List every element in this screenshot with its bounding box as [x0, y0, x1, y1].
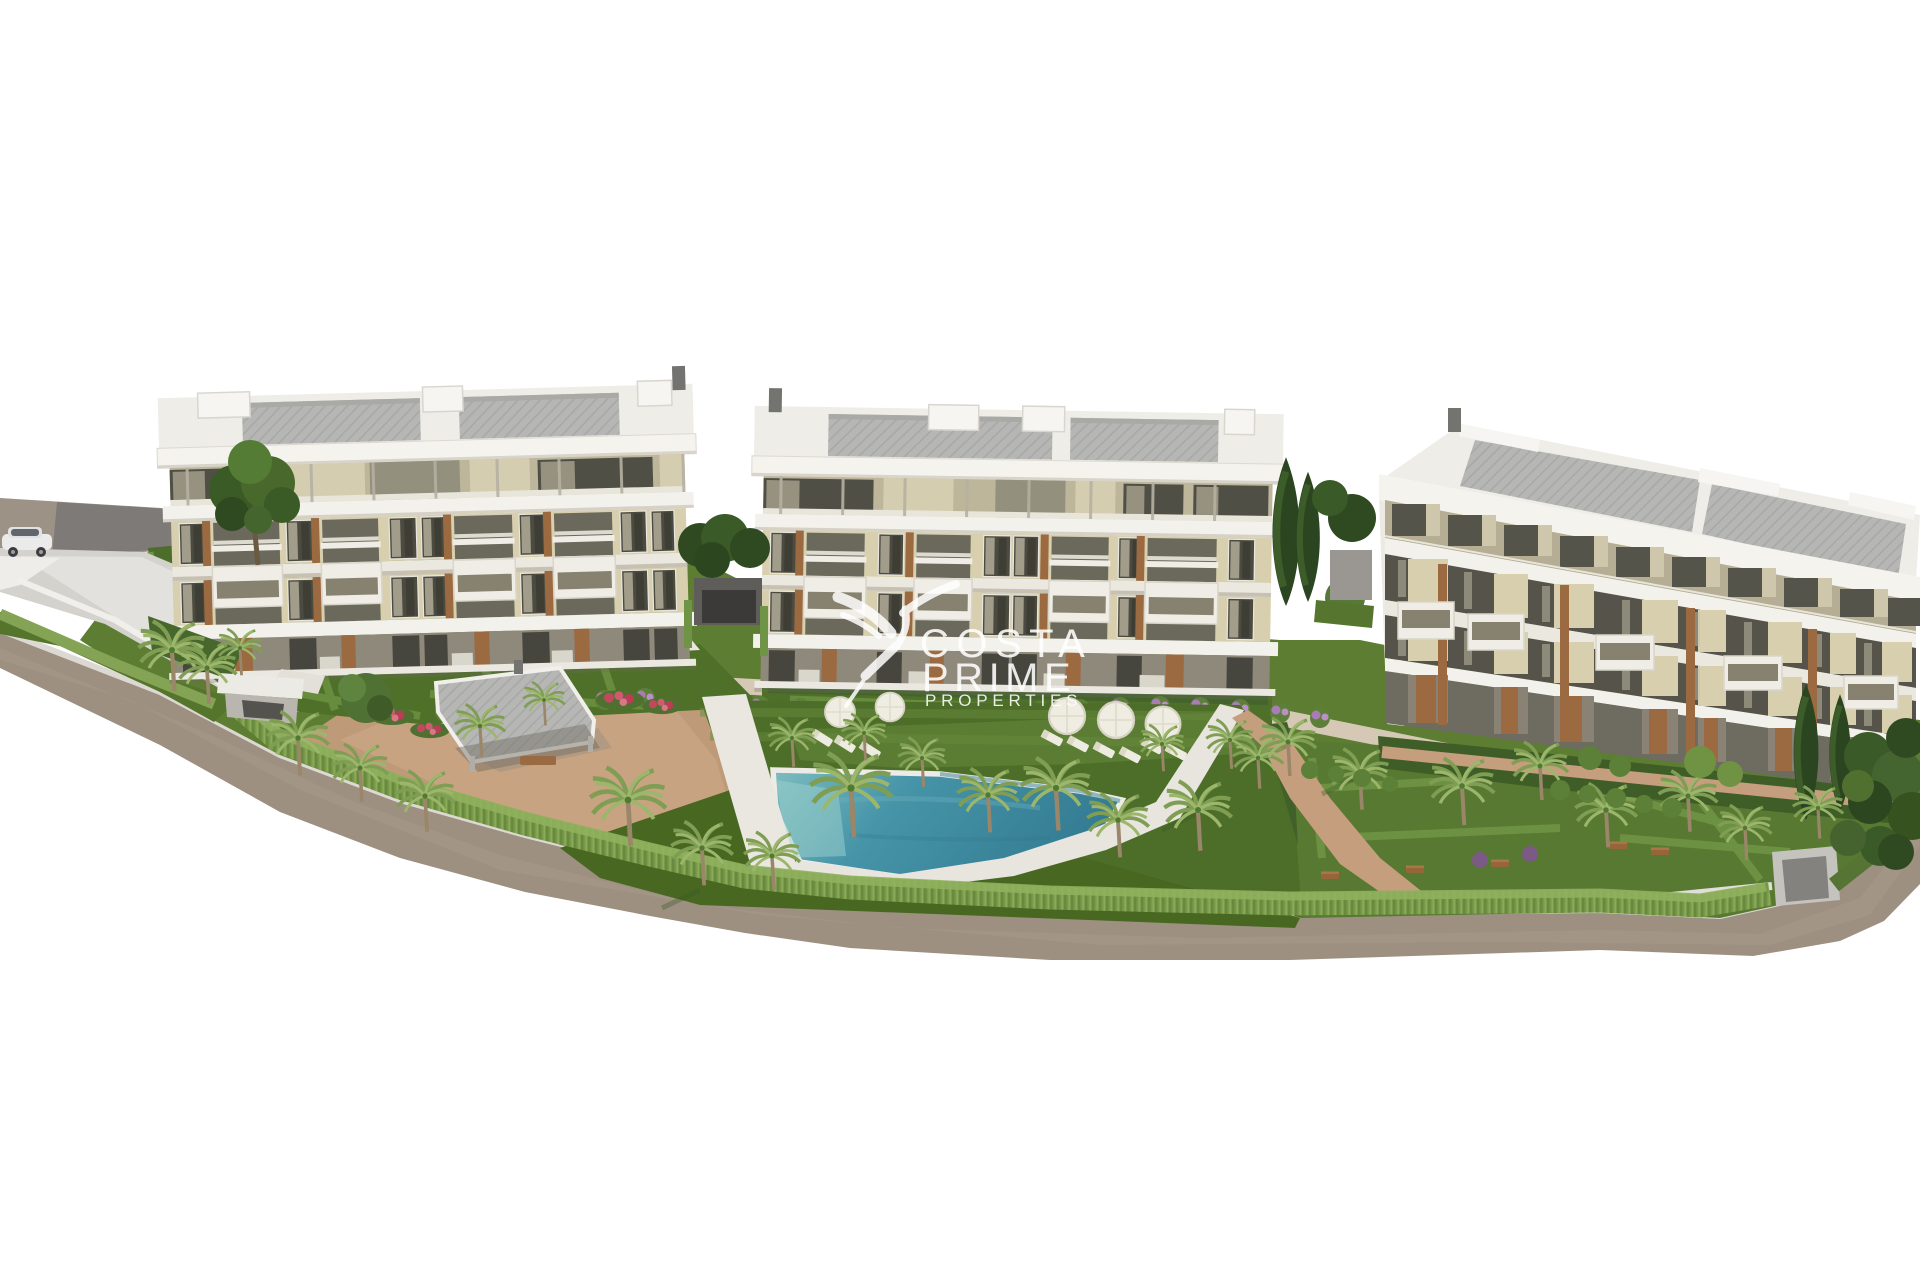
svg-text:PROPERTIES: PROPERTIES [925, 691, 1082, 710]
